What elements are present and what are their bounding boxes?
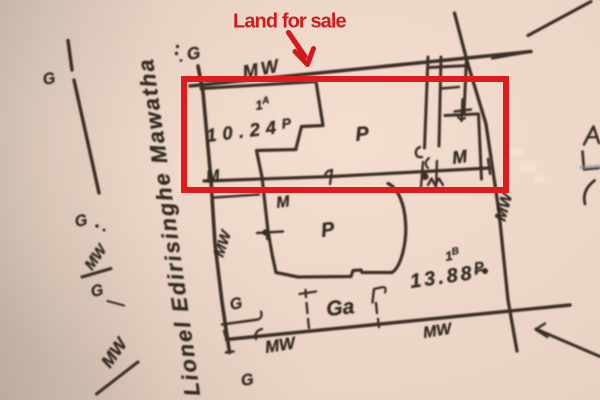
svg-text:MW: MW bbox=[97, 333, 132, 371]
svg-text:P: P bbox=[320, 218, 337, 242]
svg-text:G: G bbox=[185, 43, 201, 64]
svg-text:P: P bbox=[355, 123, 371, 146]
svg-text:1A: 1A bbox=[254, 95, 271, 113]
svg-text:Land for sale: Land for sale bbox=[233, 11, 347, 33]
svg-text:M: M bbox=[205, 167, 221, 186]
svg-text:Lionel Edirisinghe Mawatha: Lionel Edirisinghe Mawatha bbox=[133, 56, 205, 398]
svg-text:10.24P: 10.24P bbox=[205, 114, 299, 146]
svg-text:G: G bbox=[41, 70, 57, 89]
svg-text:MW: MW bbox=[422, 320, 455, 342]
svg-text:G: G bbox=[89, 282, 105, 301]
svg-text:G: G bbox=[240, 371, 255, 390]
svg-text:Ga: Ga bbox=[325, 295, 356, 321]
svg-text:MW: MW bbox=[264, 333, 299, 357]
svg-text:M: M bbox=[451, 146, 470, 168]
svg-text:G: G bbox=[228, 295, 244, 314]
svg-text:1B: 1B bbox=[444, 246, 461, 264]
svg-text:G: G bbox=[73, 212, 89, 231]
svg-text:M: M bbox=[275, 193, 291, 212]
